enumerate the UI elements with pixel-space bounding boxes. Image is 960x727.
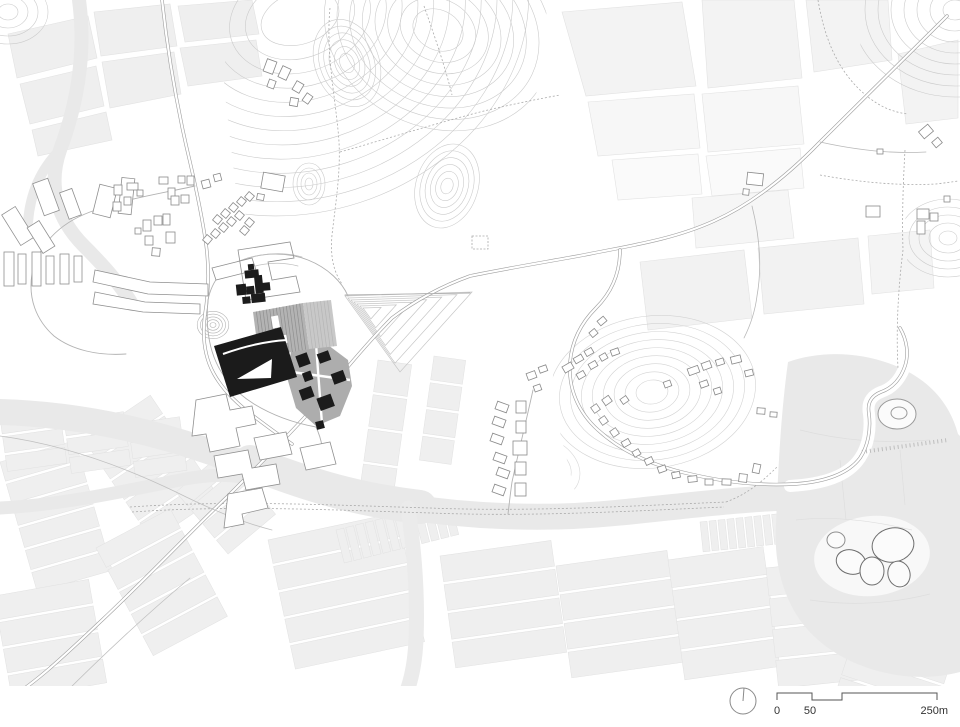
- house-footprint: [744, 369, 753, 377]
- house-footprint: [178, 176, 185, 183]
- contour-line: [197, 311, 229, 338]
- house-footprint: [292, 81, 304, 94]
- contour-line: [373, 0, 503, 90]
- contour-line: [210, 323, 216, 328]
- field-strip: [423, 409, 458, 437]
- site-plan-canvas: 0 50 250m: [0, 0, 960, 727]
- field-strip: [709, 520, 719, 551]
- pond: [827, 532, 845, 548]
- house-footprint: [235, 211, 245, 221]
- house-footprint: [866, 206, 880, 217]
- terrace-contour: [354, 300, 427, 346]
- terrace-contour: [348, 295, 457, 364]
- house-footprint: [221, 209, 231, 219]
- field-strip: [763, 515, 773, 546]
- field-plot: [702, 86, 804, 152]
- house-footprint: [124, 197, 131, 205]
- building-mass: [248, 264, 255, 271]
- estate-bar: [4, 252, 14, 286]
- house-footprint: [944, 196, 950, 202]
- house-footprint: [516, 421, 526, 433]
- trail-enclosure: [472, 236, 488, 249]
- village-block: [300, 442, 336, 470]
- house-footprint: [743, 189, 750, 196]
- house-footprint: [113, 202, 121, 211]
- scale-label-fifty: 50: [804, 705, 816, 717]
- contour-line: [0, 4, 18, 20]
- contour-line: [390, 0, 487, 75]
- house-footprint: [240, 226, 250, 236]
- house-footprint: [715, 358, 724, 366]
- field-plot: [180, 40, 262, 86]
- contour-line: [917, 0, 960, 42]
- contour-line: [432, 168, 462, 203]
- house-footprint: [516, 401, 526, 413]
- contour-line: [301, 173, 317, 195]
- field-plot: [868, 230, 934, 294]
- house-footprint: [699, 380, 709, 388]
- house-footprint: [278, 66, 291, 81]
- contour-line: [418, 152, 476, 220]
- house-footprint: [261, 172, 285, 192]
- estate-bar: [18, 254, 26, 284]
- field-strip: [431, 356, 466, 384]
- field-plot: [758, 238, 864, 314]
- contour-line: [404, 136, 490, 237]
- house-footprint: [219, 223, 229, 233]
- house-footprint: [589, 328, 598, 337]
- house-footprint: [515, 462, 526, 475]
- estate-bar: [46, 256, 54, 284]
- building-mass: [242, 296, 251, 304]
- contour-line: [622, 368, 681, 415]
- house-footprint: [257, 193, 265, 200]
- house-footprint: [688, 476, 698, 483]
- field-strip: [718, 519, 728, 550]
- house-footprint: [597, 316, 607, 326]
- house-footprint: [143, 220, 151, 231]
- house-footprint: [620, 396, 629, 405]
- pond: [860, 557, 884, 585]
- house-footprint: [213, 215, 223, 225]
- house-footprint: [917, 209, 929, 219]
- field-strip-group: [0, 579, 107, 699]
- canal: [408, 508, 417, 688]
- house-footprint: [730, 355, 741, 364]
- building-mass: [246, 286, 255, 295]
- house-footprint: [245, 218, 255, 228]
- house-footprint: [492, 416, 506, 428]
- house-footprint: [201, 179, 211, 189]
- scale-label-zero: 0: [774, 705, 780, 717]
- contour-line: [305, 178, 313, 190]
- house-footprint: [533, 384, 542, 392]
- house-footprint: [135, 228, 141, 234]
- field-plot: [640, 250, 752, 330]
- house-footprint: [492, 484, 506, 496]
- contour-line: [291, 0, 585, 167]
- contour-line: [254, 0, 346, 55]
- field-plot: [702, 0, 802, 88]
- contour-line: [439, 177, 455, 196]
- pond: [891, 407, 907, 419]
- house-footprint: [187, 176, 194, 185]
- contour-line: [204, 317, 223, 333]
- field-strip: [427, 383, 462, 411]
- house-footprint: [127, 183, 138, 190]
- house-footprint: [713, 387, 722, 395]
- house-footprint: [588, 360, 598, 369]
- house-footprint: [687, 365, 700, 375]
- house-footprint: [493, 452, 507, 464]
- contour-line: [307, 0, 568, 152]
- contour-line: [574, 331, 729, 454]
- estate-bar: [74, 256, 82, 282]
- village-block: [254, 432, 292, 460]
- contour-line: [337, 51, 357, 75]
- house-footprint: [538, 365, 548, 373]
- contour-line: [406, 1, 470, 59]
- house-footprint: [610, 428, 620, 438]
- house-footprint: [181, 195, 189, 203]
- field-strip: [419, 436, 454, 464]
- contour-set: [197, 311, 229, 338]
- house-footprint: [289, 97, 298, 106]
- estate-bar: [60, 254, 69, 284]
- house-footprint: [722, 479, 731, 485]
- house-footprint: [515, 483, 526, 496]
- house-footprint: [159, 177, 168, 184]
- house-footprint: [757, 408, 765, 415]
- ne-field-road: [820, 142, 926, 153]
- house-footprint: [573, 354, 584, 364]
- field-strip: [727, 518, 737, 549]
- house-footprint: [701, 361, 712, 371]
- house-footprint: [495, 401, 509, 413]
- house-footprint: [152, 248, 161, 257]
- contour-line: [939, 231, 957, 245]
- field-strip-group: [668, 547, 780, 680]
- contour-line: [316, 26, 379, 99]
- house-footprint: [163, 214, 170, 225]
- terrace-contour: [363, 307, 381, 319]
- house-footprint: [663, 380, 672, 388]
- field-strip-group: [359, 360, 412, 500]
- house-footprint: [137, 190, 143, 196]
- contour-line: [324, 0, 552, 136]
- field-strip: [754, 516, 764, 547]
- field-strip-group: [556, 550, 683, 677]
- house-footprint: [490, 433, 504, 445]
- field-plot: [562, 2, 696, 96]
- house-footprint: [932, 137, 943, 148]
- house-footprint: [213, 173, 222, 182]
- house-footprint: [752, 463, 761, 473]
- estate-row: [93, 270, 208, 296]
- site-plan-map: 0 50 250m: [0, 0, 960, 727]
- house-footprint: [770, 412, 777, 417]
- field-parcels-layer: [8, 0, 958, 330]
- house-footprint: [171, 196, 179, 205]
- field-strip-group: [419, 356, 465, 464]
- contour-line: [0, 0, 28, 28]
- field-plot: [692, 190, 794, 248]
- field-plot: [612, 154, 702, 200]
- contour-line: [207, 320, 219, 331]
- house-footprint: [621, 438, 631, 447]
- house-footprint: [114, 185, 122, 195]
- house-footprint: [302, 93, 313, 104]
- field-strip: [364, 429, 402, 465]
- house-footprint: [227, 217, 237, 227]
- field-plot: [588, 94, 700, 156]
- contour-line: [929, 223, 960, 253]
- trail: [820, 175, 958, 185]
- house-footprint: [919, 124, 934, 139]
- field-strip-group: [96, 509, 227, 656]
- house-footprint: [610, 348, 620, 356]
- house-footprint: [496, 467, 510, 479]
- field-plot: [806, 0, 892, 72]
- house-footprint: [166, 232, 175, 243]
- house-footprint: [671, 471, 680, 479]
- house-footprint: [746, 172, 763, 186]
- contour-set: [291, 0, 585, 167]
- contour-line: [491, 425, 589, 511]
- field-strip: [369, 395, 407, 431]
- house-footprint: [229, 203, 239, 213]
- estate-bar: [32, 252, 41, 286]
- house-footprint: [145, 236, 153, 245]
- contour-line: [550, 312, 753, 473]
- house-footprint: [237, 197, 247, 207]
- house-footprint: [211, 229, 221, 239]
- house-footprint: [705, 479, 713, 485]
- house-footprint: [562, 362, 574, 373]
- house-footprint: [526, 371, 537, 381]
- building-mass: [251, 293, 266, 303]
- scale-label-max: 250m: [920, 705, 948, 717]
- contour-set: [404, 136, 490, 237]
- field-strip: [745, 517, 755, 548]
- house-footprint: [591, 404, 601, 414]
- house-footprint: [513, 441, 527, 455]
- contour-line: [523, 454, 556, 482]
- building-mass: [236, 284, 247, 296]
- field-strip-group: [440, 540, 567, 667]
- contour-line: [425, 160, 469, 212]
- contour-line: [610, 359, 693, 425]
- field-strip: [700, 521, 710, 552]
- field-strip: [736, 518, 746, 549]
- house-footprint: [154, 216, 162, 225]
- building-mass: [262, 282, 271, 291]
- house-footprint: [739, 474, 748, 483]
- house-footprint: [930, 213, 938, 221]
- contour-set: [491, 425, 589, 511]
- museum-complex: [214, 262, 352, 430]
- house-footprint: [917, 221, 925, 234]
- house-footprint: [877, 149, 883, 154]
- house-footprint: [263, 59, 277, 75]
